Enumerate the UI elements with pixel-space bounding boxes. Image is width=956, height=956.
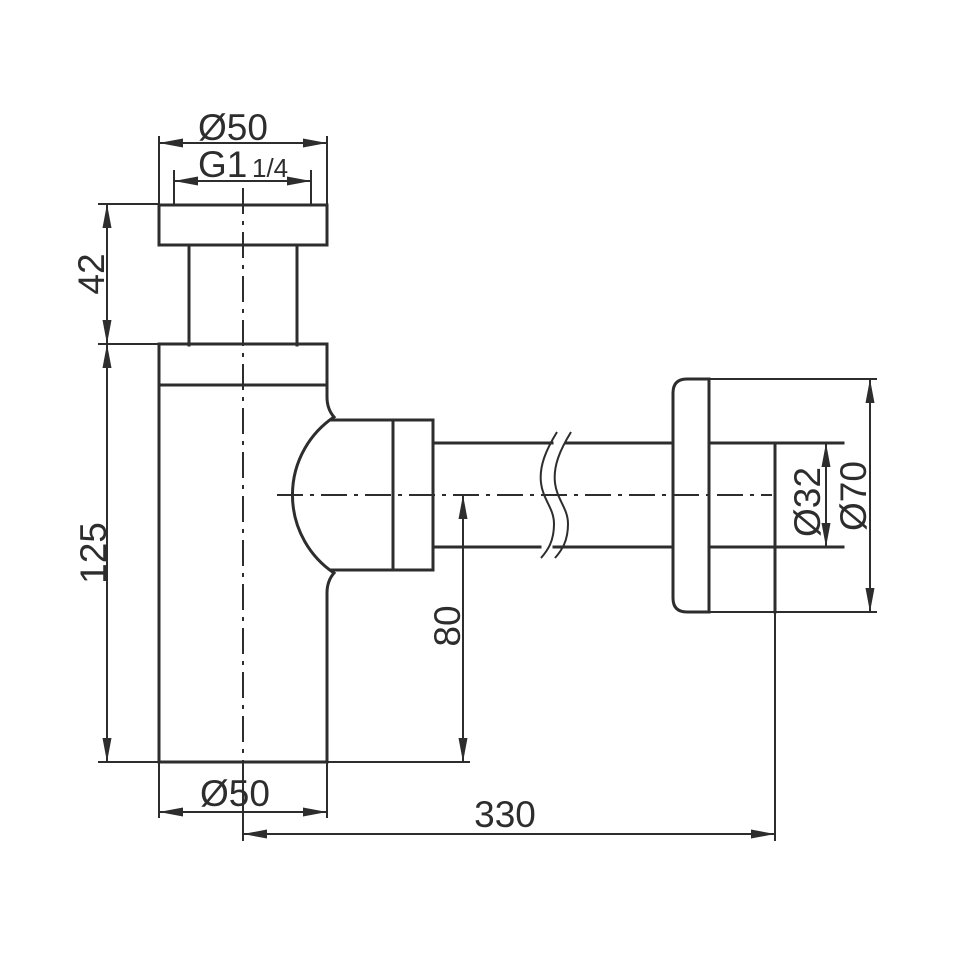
- arrowhead-down: [103, 320, 112, 344]
- dimension-upper-height: 42: [71, 204, 159, 344]
- body-right-edge-with-bulge: [292, 385, 334, 762]
- arrowhead-down: [103, 738, 112, 762]
- centerlines: [243, 188, 772, 841]
- dim-label-top-diameter: Ø50: [198, 107, 268, 148]
- bottle-trap-drawing: Ø50 G1 1/4 42 125 80: [0, 0, 956, 956]
- horizontal-pipe: [433, 432, 843, 612]
- arrowhead-left: [159, 808, 183, 817]
- dim-label-body-height: 125: [73, 522, 114, 584]
- dim-label-thread-size: G1: [198, 144, 247, 185]
- arrowhead-down: [459, 738, 468, 762]
- arrowhead-up: [103, 344, 112, 368]
- arrowhead-up: [459, 495, 468, 519]
- dim-label-upper-height: 42: [71, 253, 112, 294]
- arrowhead-right: [303, 139, 327, 148]
- dim-label-flange-diameter: Ø70: [833, 461, 874, 531]
- dim-label-outlet-height: 80: [427, 605, 468, 646]
- dimension-flange-diameter: Ø70: [833, 379, 875, 612]
- arrowhead-up: [822, 443, 831, 467]
- dimension-pipe-diameter: Ø32: [787, 443, 831, 547]
- arrowhead-left: [159, 139, 183, 148]
- dim-label-bottom-diameter: Ø50: [200, 773, 270, 814]
- dimension-body-height: 125: [73, 344, 114, 762]
- arrowhead-left: [174, 177, 198, 186]
- dim-label-thread-fraction: 1/4: [252, 153, 288, 183]
- arrowhead-up: [866, 379, 875, 403]
- arrowhead-left: [243, 830, 267, 839]
- arrowhead-right: [303, 808, 327, 817]
- trap-body-outline: [159, 205, 433, 762]
- dim-label-pipe-diameter: Ø32: [787, 467, 828, 537]
- arrowhead-right: [287, 177, 311, 186]
- arrowhead-up: [103, 204, 112, 228]
- arrowhead-right: [751, 830, 775, 839]
- dim-label-overall-length: 330: [474, 794, 536, 835]
- technical-drawing-page: Ø50 G1 1/4 42 125 80: [0, 0, 956, 956]
- dimension-overall-length: 330: [243, 794, 775, 839]
- arrowhead-down: [866, 588, 875, 612]
